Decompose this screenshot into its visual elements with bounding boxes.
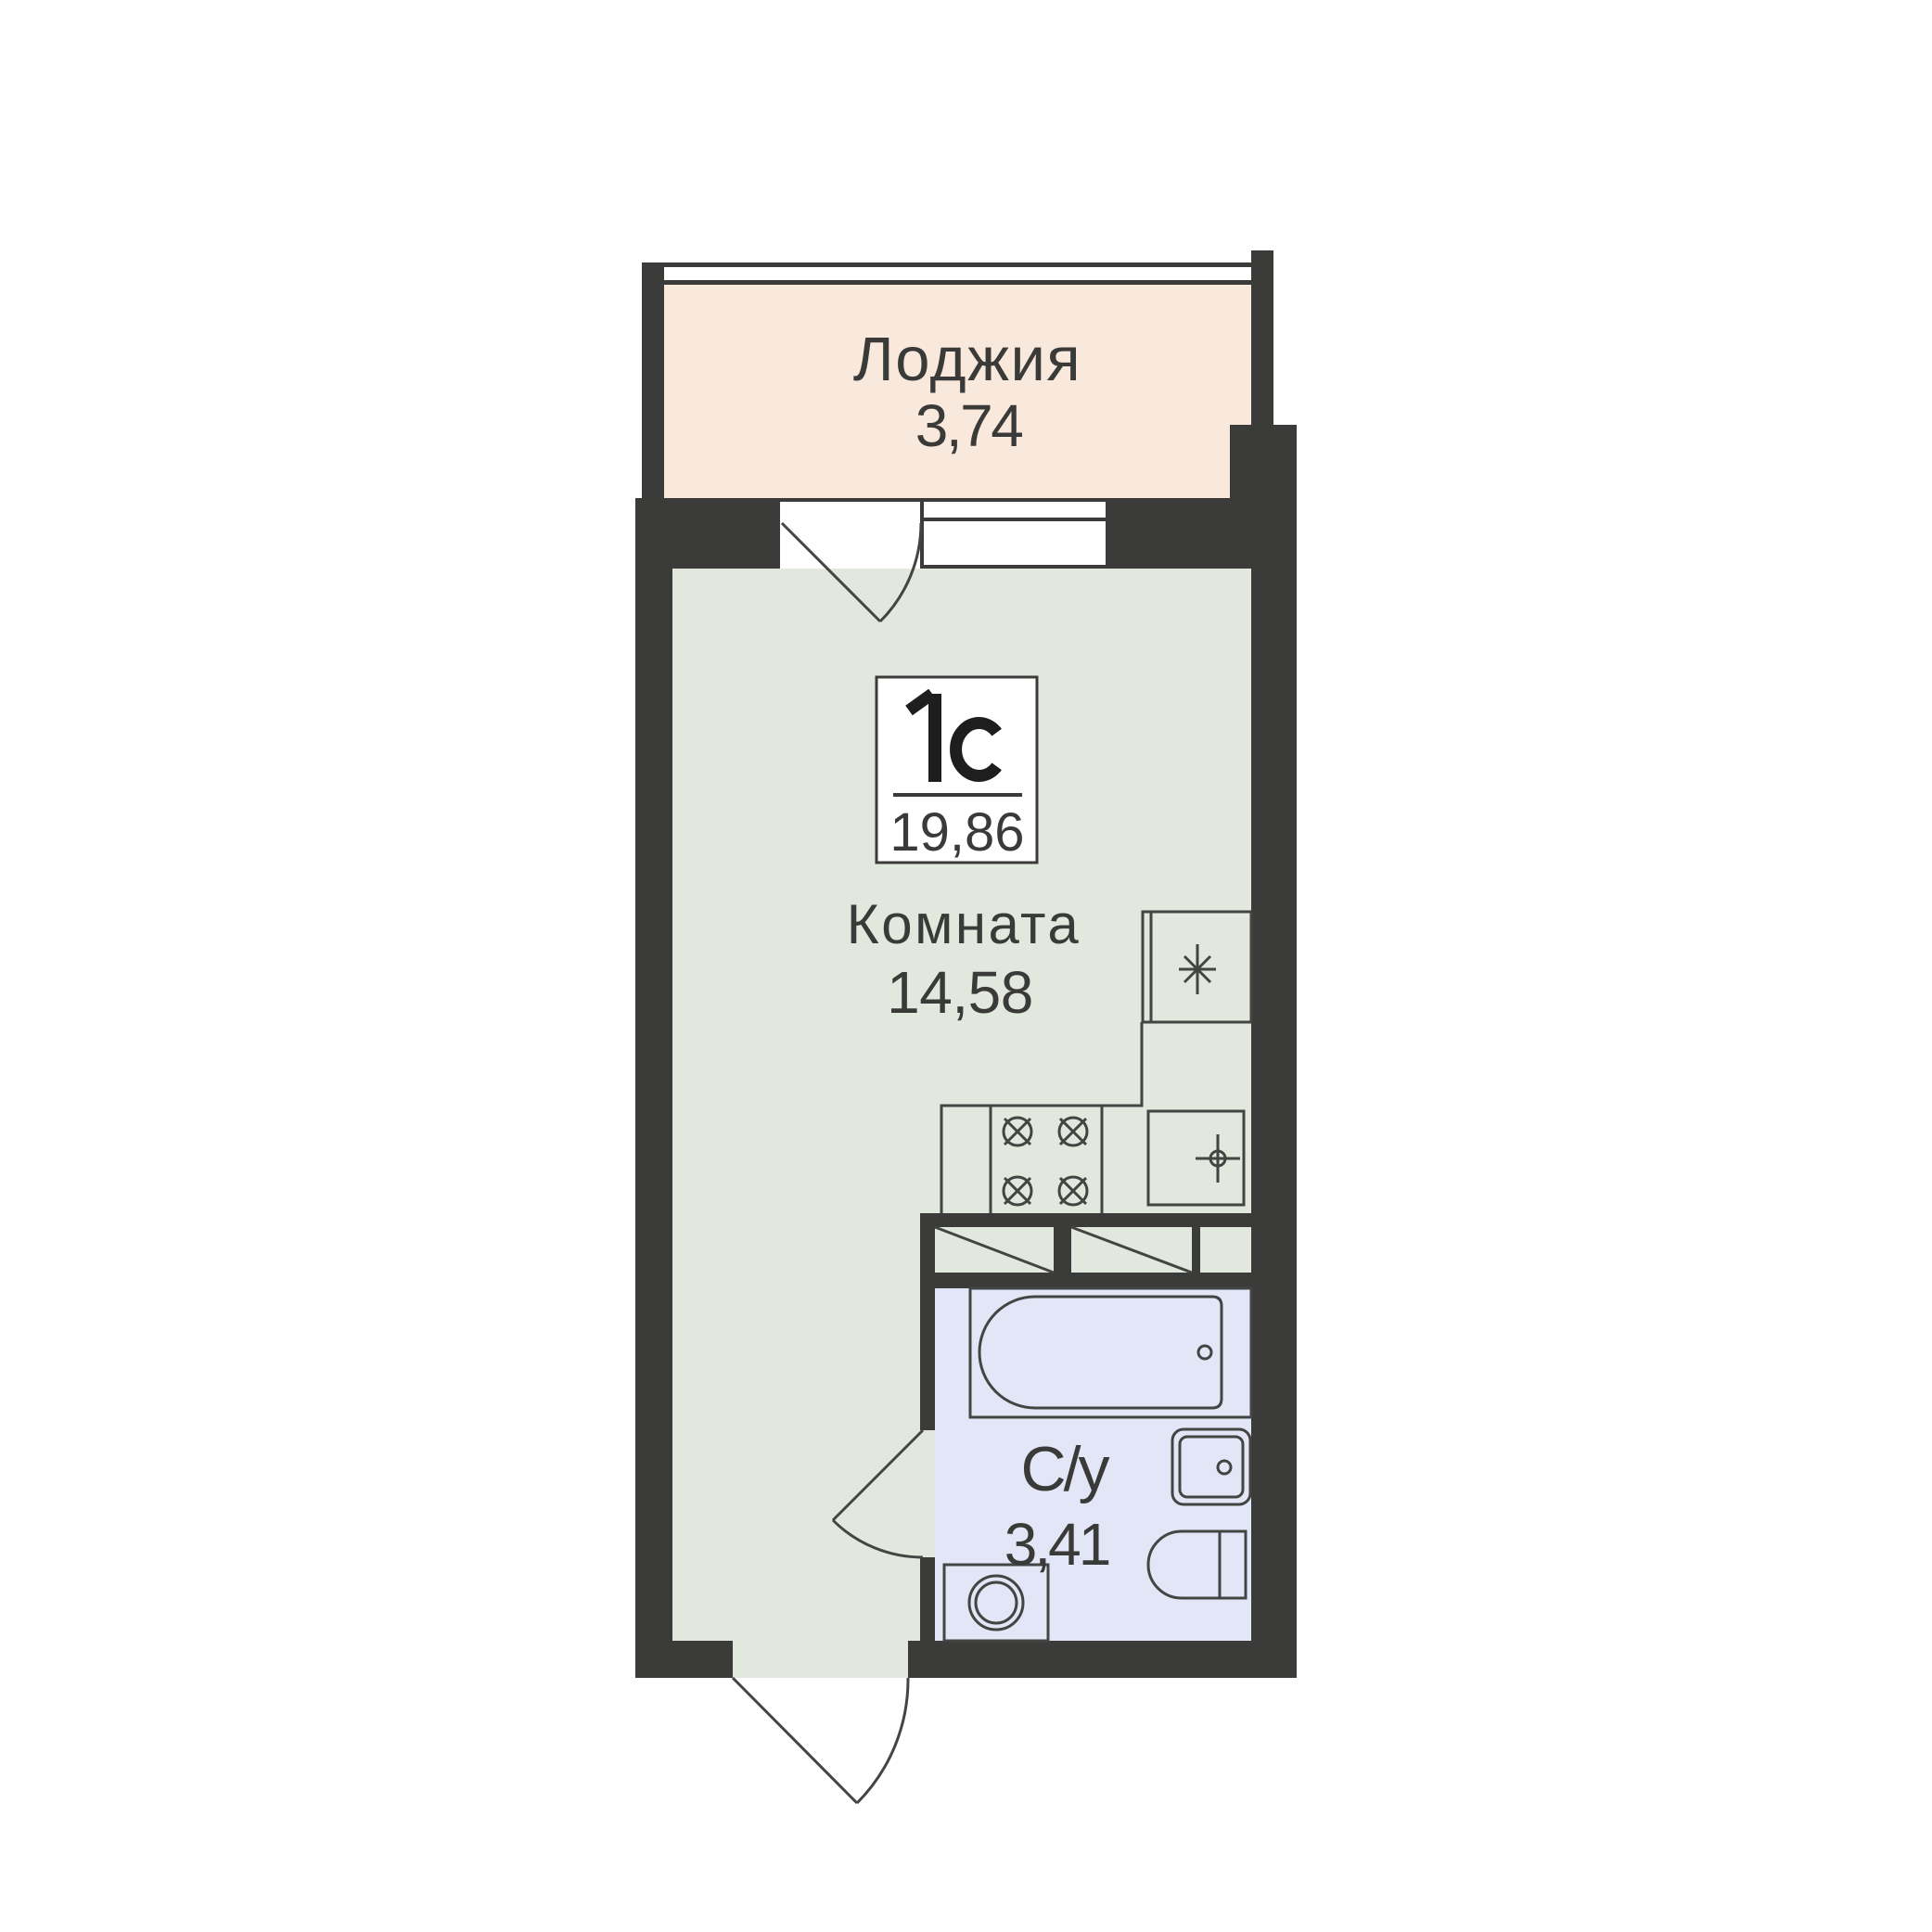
svg-text:14,58: 14,58: [887, 959, 1033, 1026]
svg-text:Комната: Комната: [847, 893, 1081, 955]
svg-text:С/у: С/у: [1021, 1434, 1110, 1504]
svg-text:3,41: 3,41: [1004, 1511, 1109, 1578]
svg-text:19,86: 19,86: [889, 802, 1024, 863]
svg-text:Лоджия: Лоджия: [853, 325, 1081, 394]
svg-text:3,74: 3,74: [915, 392, 1022, 459]
